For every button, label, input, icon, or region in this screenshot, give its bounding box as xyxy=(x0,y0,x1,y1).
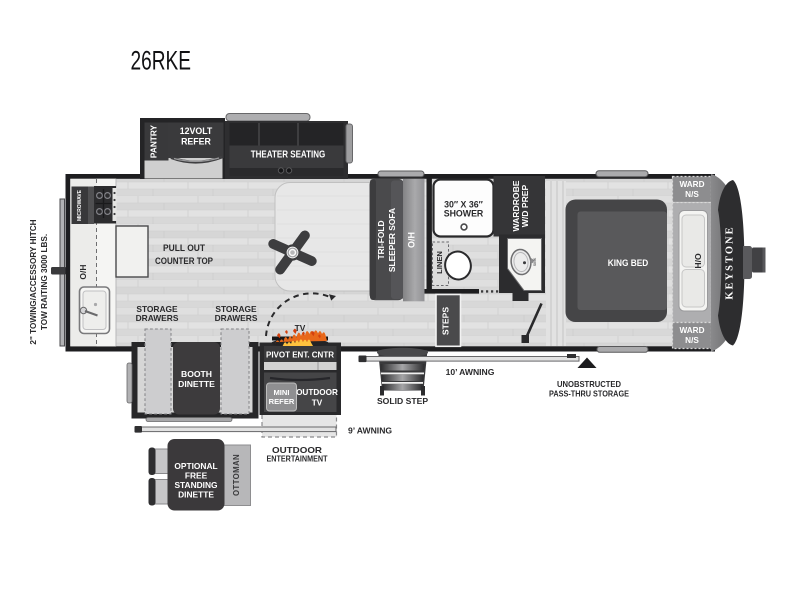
svg-text:OPTIONAL: OPTIONAL xyxy=(174,461,217,471)
svg-text:DINETTE: DINETTE xyxy=(178,379,215,389)
svg-text:O/H: O/H xyxy=(78,264,88,279)
svg-text:OUTDOOR: OUTDOOR xyxy=(296,388,338,397)
svg-text:26RKE: 26RKE xyxy=(131,46,192,76)
svg-text:SLEEPER SOFA: SLEEPER SOFA xyxy=(387,208,397,272)
svg-text:H/O: H/O xyxy=(693,253,703,269)
svg-text:STEPS: STEPS xyxy=(441,307,451,335)
svg-text:OTTOMAN: OTTOMAN xyxy=(232,454,241,496)
svg-text:DRAWERS: DRAWERS xyxy=(215,313,258,323)
svg-text:PULL OUT: PULL OUT xyxy=(163,243,205,254)
svg-text:REFER: REFER xyxy=(269,397,295,406)
svg-text:12VOLT: 12VOLT xyxy=(180,126,213,136)
svg-text:SOLID STEP: SOLID STEP xyxy=(377,396,428,406)
svg-text:DRAWERS: DRAWERS xyxy=(136,313,179,323)
svg-text:O/H: O/H xyxy=(407,232,417,248)
svg-text:WARD: WARD xyxy=(679,326,704,335)
svg-text:FREE: FREE xyxy=(185,471,208,481)
svg-text:ENTERTAINMENT: ENTERTAINMENT xyxy=(267,454,329,464)
svg-text:LINEN: LINEN xyxy=(435,251,444,274)
svg-text:UNOBSTRUCTED: UNOBSTRUCTED xyxy=(557,379,621,389)
svg-text:KING BED: KING BED xyxy=(608,258,649,268)
svg-text:N/S: N/S xyxy=(685,190,699,199)
svg-text:BOOTH: BOOTH xyxy=(181,369,212,379)
svg-text:10’ AWNING: 10’ AWNING xyxy=(446,367,495,377)
svg-text:DINETTE: DINETTE xyxy=(178,490,214,500)
svg-text:REFER: REFER xyxy=(181,137,211,147)
svg-text:PIVOT ENT. CNTR: PIVOT ENT. CNTR xyxy=(266,351,334,360)
svg-text:N/S: N/S xyxy=(685,336,699,345)
svg-text:TRI-FOLD: TRI-FOLD xyxy=(376,220,386,259)
svg-text:MICROWAVE: MICROWAVE xyxy=(77,189,83,221)
svg-text:TOW RAITING 3000 LBS.: TOW RAITING 3000 LBS. xyxy=(40,234,49,330)
svg-text:KEYSTONE: KEYSTONE xyxy=(725,225,736,299)
svg-text:W/D PREP: W/D PREP xyxy=(520,184,530,227)
svg-text:SHOWER: SHOWER xyxy=(444,209,484,219)
svg-text:PASS-THRU STORAGE: PASS-THRU STORAGE xyxy=(549,389,629,399)
svg-text:COUNTER TOP: COUNTER TOP xyxy=(155,256,214,267)
svg-text:STANDING: STANDING xyxy=(174,480,217,490)
svg-text:THEATER SEATING: THEATER SEATING xyxy=(251,150,326,161)
svg-text:PANTRY: PANTRY xyxy=(149,124,159,158)
svg-text:SINK: SINK xyxy=(533,257,537,266)
svg-text:MINI: MINI xyxy=(273,388,289,397)
svg-text:WARD: WARD xyxy=(679,180,704,189)
svg-text:2" TOWING/ACCESSORY HITCH: 2" TOWING/ACCESSORY HITCH xyxy=(29,219,38,344)
svg-text:TV: TV xyxy=(312,399,323,408)
svg-text:9’ AWNING: 9’ AWNING xyxy=(348,426,392,436)
